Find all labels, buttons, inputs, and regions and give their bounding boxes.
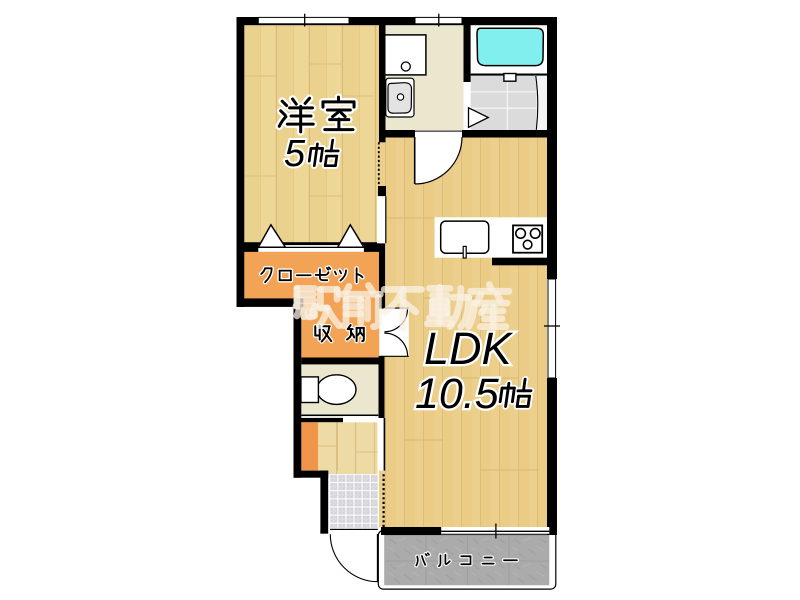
svg-text:10.5: 10.5: [415, 370, 500, 418]
svg-text:LDK: LDK: [424, 323, 514, 374]
svg-text:5: 5: [284, 133, 306, 175]
